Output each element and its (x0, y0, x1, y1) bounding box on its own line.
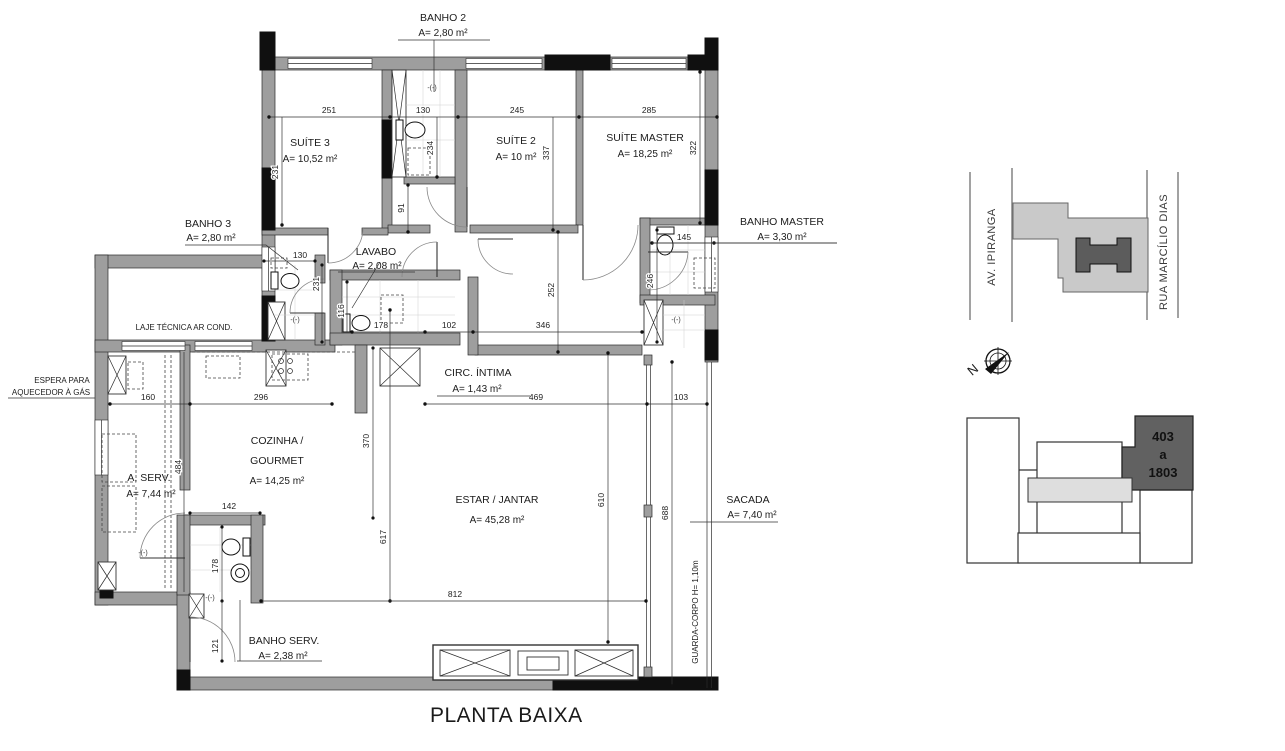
dim-estar-r: 610 (596, 493, 606, 507)
dim-estar-w: 812 (448, 589, 462, 599)
circ-intima-area: A= 1,43 m² (452, 384, 502, 395)
suite2-area: A= 10 m² (496, 152, 538, 163)
unit-number-1: 403 (1152, 429, 1174, 444)
toilet-banho3 (271, 272, 299, 289)
dim-shaft-h: 91 (396, 203, 406, 213)
dim-suite2-h: 337 (541, 146, 551, 160)
dim-banho2-h: 234 (425, 141, 435, 155)
dim-aserv-w: 160 (141, 392, 155, 402)
north-compass: N (964, 347, 1012, 378)
room-label-banho-serv: BANHO SERV. A= 2,38 m² (249, 635, 320, 662)
banho-serv-area: A= 2,38 m² (258, 651, 308, 662)
dim-hall-h: 252 (546, 283, 556, 297)
drawing-title: PLANTA BAIXA (430, 704, 583, 727)
dim-banho-master-h: 246 (645, 274, 655, 288)
dim-banho3-w: 130 (293, 250, 307, 260)
dim-cozinha-w: 296 (254, 392, 268, 402)
unit-number-2: a (1159, 447, 1167, 462)
banho-master-area: A= 3,30 m² (757, 232, 807, 243)
shaft-entry (189, 594, 204, 618)
espera-label-2: AQUECEDOR À GÁS (12, 388, 90, 397)
estar-area: A= 45,28 m² (470, 515, 525, 526)
door-suite2 (478, 239, 513, 274)
room-label-suite3: SUÍTE 3 A= 10,52 m² (283, 136, 338, 165)
room-label-sacada: SACADA A= 7,40 m² (726, 494, 777, 521)
planter (433, 645, 638, 680)
dim-banho-serv-low: 121 (210, 639, 220, 653)
dim-banho-master-w: 145 (677, 232, 691, 242)
aserv-name: A. SERV. (127, 472, 170, 484)
room-label-banho3: BANHO 3 A= 2,80 m² (185, 218, 236, 244)
estar-name: ESTAR / JANTAR (455, 494, 538, 506)
lavabo-name: LAVABO (356, 246, 396, 258)
toilet-banho2 (396, 120, 425, 140)
floor-plan-sheet: 251 130 245 285 231 234 337 322 91 130 2… (0, 0, 1285, 751)
valve-banho-master: -(-) (671, 317, 680, 324)
lavabo-area: A= 2,08 m² (352, 261, 402, 272)
banho3-name: BANHO 3 (185, 218, 231, 230)
dim-suite3-w: 251 (322, 105, 336, 115)
shaft-banho3 (268, 302, 285, 340)
room-label-suite2: SUÍTE 2 A= 10 m² (496, 134, 538, 163)
dim-suite-master-h: 322 (688, 141, 698, 155)
dim-banho-serv-h: 178 (210, 559, 220, 573)
dim-sacada-h: 688 (660, 506, 670, 520)
street-left-label: AV. IPIRANGA (986, 208, 998, 286)
circ-intima-name: CIRC. ÍNTIMA (444, 366, 511, 379)
room-label-estar: ESTAR / JANTAR A= 45,28 m² (455, 494, 538, 526)
toilet-banho-master (657, 227, 674, 255)
banho-master-name: BANHO MASTER (740, 216, 824, 228)
dim-banho3-h: 231 (311, 277, 321, 291)
door-suite-master (583, 225, 638, 280)
key-plan: 403 a 1803 (967, 416, 1193, 563)
banho3-area: A= 2,80 m² (186, 233, 236, 244)
sacada-area: A= 7,40 m² (727, 510, 777, 521)
valve-aserv: -(-) (138, 550, 147, 557)
aserv-area: A= 7,44 m² (126, 489, 176, 500)
room-label-banho-master: BANHO MASTER A= 3,30 m² (740, 216, 824, 243)
laje-label: LAJE TÉCNICA AR COND. (136, 323, 233, 332)
shaft-cozinha (380, 348, 420, 386)
shaft-banho-master (644, 300, 663, 345)
dim-suite3-h: 231 (270, 165, 280, 179)
cozinha-area: A= 14,25 m² (250, 476, 305, 487)
dim-lavabo-h: 116 (336, 304, 346, 318)
keyplan-corridor (1028, 478, 1132, 502)
toilet-banho-serv (222, 538, 250, 556)
north-letter: N (964, 361, 981, 379)
site-map: AV. IPIRANGA RUA MARCÍLIO DIAS (970, 168, 1178, 322)
room-label-lavabo: LAVABO A= 2,08 m² (352, 246, 402, 272)
suite3-area: A= 10,52 m² (283, 154, 338, 165)
dim-estar-top: 469 (529, 392, 543, 402)
shaft-laje (266, 350, 286, 386)
room-label-suite-master: SUÍTE MASTER A= 18,25 m² (606, 131, 684, 160)
suite-master-name: SUÍTE MASTER (606, 131, 684, 144)
dim-lavabo-w: 178 (374, 320, 388, 330)
dim-hall-w: 346 (536, 320, 550, 330)
dim-circ-w: 102 (442, 320, 456, 330)
guarda-corpo-label: GUARDA-CORPO H= 1,10m (691, 560, 700, 664)
valve-banho2: -(-) (427, 85, 436, 92)
cozinha-name-2: GOURMET (250, 455, 304, 467)
suite2-name: SUÍTE 2 (496, 134, 536, 147)
dim-aserv-h: 484 (173, 460, 183, 474)
dim-banho2-w: 130 (416, 105, 430, 115)
sacada-name: SACADA (726, 494, 769, 506)
dim-suite2-w: 245 (510, 105, 524, 115)
dim-estar-h: 617 (378, 530, 388, 544)
banho2-name: BANHO 2 (420, 12, 466, 24)
room-label-circ-intima: CIRC. ÍNTIMA A= 1,43 m² (444, 366, 511, 395)
valve-banho-serv: -(-) (205, 595, 214, 602)
cozinha-name-1: COZINHA / (251, 435, 304, 447)
valve-banho3: -(-) (290, 317, 299, 324)
dim-cozinha-h: 370 (361, 434, 371, 448)
room-label-banho2: BANHO 2 A= 2,80 m² (418, 12, 468, 39)
dim-banho-serv-w: 142 (222, 501, 236, 511)
dim-suite-master-w: 285 (642, 105, 656, 115)
dimensions: 251 130 245 285 231 234 337 322 91 130 2… (108, 70, 837, 687)
room-label-cozinha: COZINHA / GOURMET A= 14,25 m² (250, 435, 305, 487)
shaft-aquecedor (108, 356, 126, 394)
unit-number-3: 1803 (1149, 465, 1178, 480)
banho2-area: A= 2,80 m² (418, 28, 468, 39)
dim-sacada-top: 103 (674, 392, 688, 402)
suite-master-area: A= 18,25 m² (618, 149, 673, 160)
banho-serv-name: BANHO SERV. (249, 635, 320, 647)
sink-banho-serv (231, 564, 249, 582)
shaft-banho-serv (98, 562, 116, 590)
floor-plan-drawing: 251 130 245 285 231 234 337 322 91 130 2… (0, 0, 1285, 751)
espera-label-1: ESPERA PARA (34, 376, 90, 385)
street-right-label: RUA MARCÍLIO DIAS (1157, 194, 1170, 310)
suite3-name: SUÍTE 3 (290, 136, 330, 149)
